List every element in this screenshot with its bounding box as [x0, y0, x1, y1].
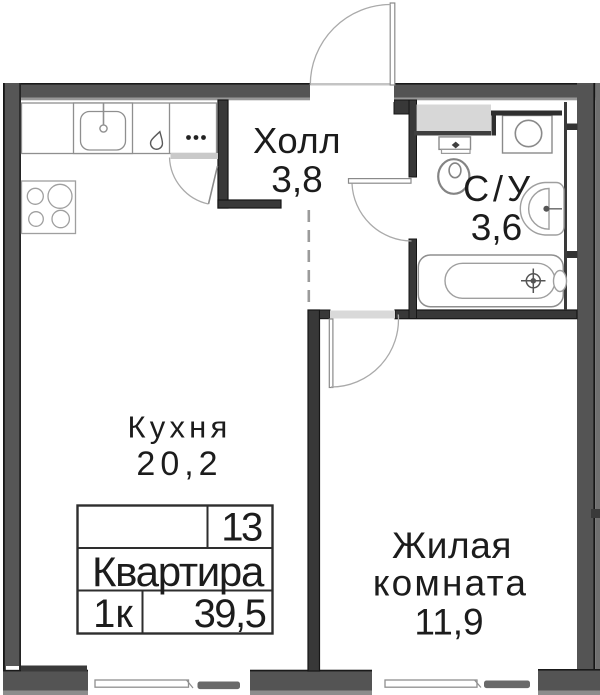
svg-text:1к: 1к — [93, 592, 133, 636]
svg-text:3,6: 3,6 — [471, 207, 522, 248]
svg-text:комната: комната — [373, 563, 528, 604]
svg-text:Квартира: Квартира — [92, 548, 265, 595]
svg-text:Жилая: Жилая — [392, 525, 512, 566]
svg-text:С/У: С/У — [463, 168, 534, 209]
svg-text:Холл: Холл — [253, 120, 341, 161]
svg-text:20,2: 20,2 — [136, 445, 222, 483]
svg-text:3,8: 3,8 — [271, 159, 322, 200]
svg-text:Кухня: Кухня — [128, 410, 232, 445]
svg-text:11,9: 11,9 — [414, 602, 483, 643]
svg-text:13: 13 — [221, 506, 262, 550]
svg-text:39,5: 39,5 — [194, 592, 266, 636]
